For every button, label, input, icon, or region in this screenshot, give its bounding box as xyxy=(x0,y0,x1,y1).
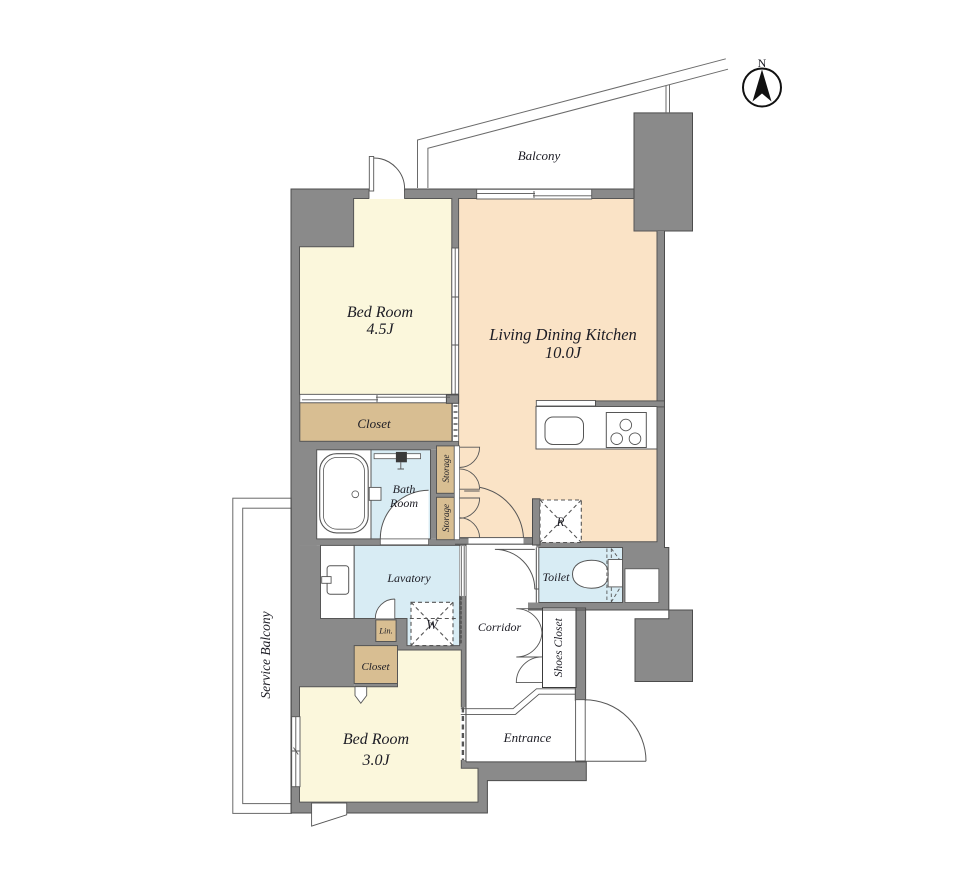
svg-text:Entrance: Entrance xyxy=(503,730,552,745)
svg-text:Closet: Closet xyxy=(357,416,391,431)
svg-text:Balcony: Balcony xyxy=(518,148,561,163)
svg-text:Bath: Bath xyxy=(393,482,416,496)
svg-text:3.0J: 3.0J xyxy=(361,752,390,769)
svg-text:Room: Room xyxy=(389,496,418,510)
svg-text:Lavatory: Lavatory xyxy=(386,571,431,585)
svg-text:4.5J: 4.5J xyxy=(366,321,394,338)
svg-text:Living Dining Kitchen: Living Dining Kitchen xyxy=(488,325,637,344)
svg-text:Bed Room: Bed Room xyxy=(347,304,413,321)
svg-text:Service Balcony: Service Balcony xyxy=(258,611,273,698)
svg-text:Corridor: Corridor xyxy=(478,620,522,634)
svg-text:10.0J: 10.0J xyxy=(545,343,582,362)
svg-text:N: N xyxy=(758,56,767,70)
svg-text:Storage: Storage xyxy=(441,504,451,532)
svg-text:W: W xyxy=(426,618,439,633)
svg-text:Closet: Closet xyxy=(361,661,390,673)
svg-text:Shoes Closet: Shoes Closet xyxy=(553,617,565,677)
svg-text:Storage: Storage xyxy=(441,454,451,482)
svg-text:Toilet: Toilet xyxy=(543,570,571,584)
svg-text:Lin.: Lin. xyxy=(378,626,392,636)
svg-text:R: R xyxy=(556,514,565,529)
svg-text:Bed Room: Bed Room xyxy=(343,731,409,748)
